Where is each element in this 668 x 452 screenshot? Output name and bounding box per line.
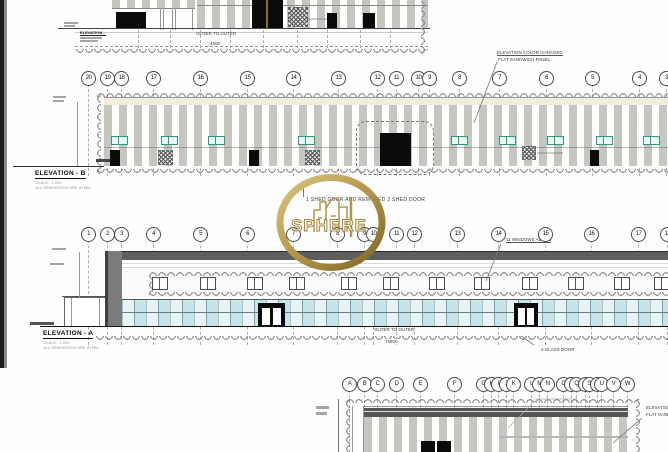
grid-bubble-18: 18: [114, 71, 129, 86]
elevation-a-dim-value: 75800: [384, 339, 399, 344]
grid-line: [360, 30, 361, 48]
window: [596, 136, 613, 145]
grid-bubble-N: N: [540, 377, 555, 392]
grid-bubble-3: 3: [114, 227, 129, 242]
sphere-logo: SPHERE: [274, 174, 388, 271]
level-marker: [96, 159, 110, 162]
level-marker: [316, 406, 329, 409]
top-dim-value: 4500: [210, 41, 220, 46]
ground-line: [40, 326, 668, 327]
elevation-a-dim-label: OUTER TO OUTER: [374, 327, 414, 332]
dims-note-blur: [80, 40, 98, 42]
grid-line: [297, 30, 298, 48]
jamb-line: [160, 8, 161, 30]
grid-bubble-6: 6: [240, 227, 255, 242]
grid-bubble-13: 13: [450, 227, 465, 242]
window: [161, 136, 178, 145]
grid-bubble-11: 11: [389, 71, 404, 86]
drawing-sheet: OUTER TO OUTER 4500 ELEVATION - C 201918…: [0, 0, 668, 452]
annotation-color-changed-line2: FLAT SANDWICH PANEL: [498, 57, 550, 62]
window: [522, 277, 538, 290]
small-door: [363, 13, 375, 29]
window: [643, 136, 660, 145]
window: [568, 277, 584, 290]
grid-bubble-2: 2: [100, 227, 115, 242]
grid-bubble-12: 12: [370, 71, 385, 86]
window: [208, 136, 225, 145]
shed-door: [590, 150, 599, 166]
cloud-border: [75, 49, 428, 56]
transom-line: [122, 312, 668, 313]
band-line: [500, 436, 628, 438]
window: [383, 277, 399, 290]
logo-text: SPHERE: [291, 216, 367, 235]
grid-bubble-14: 14: [286, 71, 301, 86]
door-leaf: [527, 308, 534, 325]
shed-door: [249, 150, 259, 166]
jamb-line: [163, 8, 164, 30]
top-elevation-line: [112, 8, 195, 9]
roof-line: [352, 406, 628, 407]
ground-line: [58, 28, 430, 29]
grid-line-A: [349, 390, 350, 452]
level-marker: [64, 22, 78, 24]
level-marker: [53, 96, 66, 98]
grid-line: [390, 30, 391, 48]
cloud-border: [636, 399, 643, 452]
dim-line: [75, 46, 428, 47]
hatch-panel: [158, 150, 173, 165]
cloud-border: [345, 396, 639, 403]
grid-bubble-18: 18: [660, 227, 668, 242]
elevation-b-label: ELEVATION - B: [35, 170, 86, 179]
shed-door: [421, 441, 435, 452]
small-door: [327, 13, 337, 29]
top-elevation-line: [197, 5, 428, 6]
grid-bubble-C: C: [370, 377, 385, 392]
window: [111, 136, 128, 145]
annex-line: [71, 298, 72, 326]
bottom-elevation-striped-wall: [364, 417, 628, 452]
glass-door: [258, 303, 285, 327]
top-dim-label: OUTER TO OUTER: [196, 31, 236, 36]
shed-door: [110, 150, 120, 166]
grid-bubble-12: 12: [407, 227, 422, 242]
jamb-line: [172, 8, 173, 30]
window: [614, 277, 630, 290]
grid-bubble-5: 5: [585, 71, 600, 86]
grid-bubble-K: K: [506, 377, 521, 392]
end-column: [352, 406, 364, 452]
annotation-color-changed-bottom-line1: ELEVATION COLOR CHNAGED: [646, 405, 668, 410]
grid-line-20: [88, 84, 89, 176]
grid-bubble-14: 14: [491, 227, 506, 242]
cloud-border: [95, 336, 668, 343]
window: [499, 136, 516, 145]
revision-cloud-box: [356, 121, 434, 175]
window: [200, 277, 216, 290]
hatch-panel: [305, 150, 320, 165]
cloud-border: [148, 269, 668, 276]
grid-bubble-3: 3: [659, 71, 668, 86]
cloud-border: [96, 90, 668, 97]
ground-line: [13, 166, 104, 167]
dim-line: [75, 32, 428, 33]
door-center-line: [266, 0, 268, 29]
level-marker: [53, 100, 64, 102]
grid-bubble-20: 20: [81, 71, 96, 86]
window: [547, 136, 564, 145]
grid-bubble-1: 1: [81, 227, 96, 242]
jamb-line: [192, 8, 193, 30]
sill-line: [122, 299, 668, 300]
grid-bubble-D: D: [389, 377, 404, 392]
grid-bubble-19: 19: [100, 71, 115, 86]
dim-line-vertical: [338, 399, 339, 452]
shed-door: [116, 12, 146, 29]
grid-bubble-9: 9: [422, 71, 437, 86]
grid-bubble-7: 7: [492, 71, 507, 86]
top-elevation-upper-stripes: [112, 0, 195, 8]
level-marker: [30, 322, 54, 325]
cloud-border: [421, 0, 428, 54]
door-leaf: [518, 308, 525, 325]
scale-note-blur: [80, 37, 102, 39]
elevation-a-label: ELEVATION - A: [43, 330, 93, 339]
elevation-b-dims: ALL DIMENSIONS ARE IN MM: [35, 185, 90, 190]
elevation-top-label: ELEVATION - C: [80, 30, 106, 36]
level-marker: [52, 248, 66, 250]
grid-bubble-16: 16: [584, 227, 599, 242]
window: [341, 277, 357, 290]
corner-tower: [105, 251, 122, 327]
grid-bubble-11: 11: [389, 227, 404, 242]
window: [429, 277, 445, 290]
window: [152, 277, 168, 290]
level-marker: [50, 263, 64, 265]
dark-band: [364, 408, 628, 417]
grid-bubble-17: 17: [146, 71, 161, 86]
grid-bubble-W: W: [620, 377, 635, 392]
shed-door: [437, 441, 451, 452]
grid-bubble-15: 15: [240, 71, 255, 86]
level-marker: [64, 25, 75, 27]
grid-bubble-E: E: [413, 377, 428, 392]
grid-line: [327, 30, 328, 48]
grid-line: [263, 30, 264, 48]
window: [247, 277, 263, 290]
dim-line-vertical: [77, 102, 78, 166]
jamb-line: [175, 8, 176, 30]
annotation-glass-door: 2 GLASS DOOR: [541, 347, 575, 352]
grid-bubble-6: 6: [539, 71, 554, 86]
glass-curtain-wall: [122, 300, 668, 327]
grid-bubble-13: 13: [331, 71, 346, 86]
grid-bubble-V: V: [606, 377, 621, 392]
annex-block: [64, 297, 106, 327]
elevation-a-dims: ALL DIMENSIONS ARE IN MM: [43, 345, 98, 350]
hatch-panel: [288, 7, 308, 27]
cloud-border: [94, 94, 101, 174]
glass-door: [514, 303, 538, 327]
window: [451, 136, 468, 145]
window: [289, 277, 305, 290]
window: [298, 136, 315, 145]
level-marker: [316, 412, 327, 415]
window: [474, 277, 490, 290]
grid-line: [138, 30, 139, 48]
grid-bubble-4: 4: [632, 71, 647, 86]
annotation-color-changed-line1: ELEVATION COLOR CHNAGED: [497, 50, 563, 56]
grid-bubble-16: 16: [193, 71, 208, 86]
door-leaf: [262, 308, 270, 325]
annex-line: [99, 298, 100, 326]
sheet-edge: [0, 0, 7, 368]
annotation-color-changed-bottom-line2: FLAT SANDWICH PANEL: [646, 412, 668, 417]
grid-bubble-A: A: [342, 377, 357, 392]
large-shed-door: [252, 0, 283, 29]
grid-bubble-17: 17: [631, 227, 646, 242]
grid-bubble-8: 8: [452, 71, 467, 86]
grid-bubble-4: 4: [146, 227, 161, 242]
cloud-border: [148, 292, 668, 299]
hatch-panel: [522, 146, 536, 160]
door-leaf: [273, 308, 281, 325]
grid-bubble-15: 15: [538, 227, 553, 242]
grid-bubble-5: 5: [193, 227, 208, 242]
grid-bubble-F: F: [447, 377, 462, 392]
grid-line: [170, 30, 171, 48]
window: [654, 277, 668, 290]
